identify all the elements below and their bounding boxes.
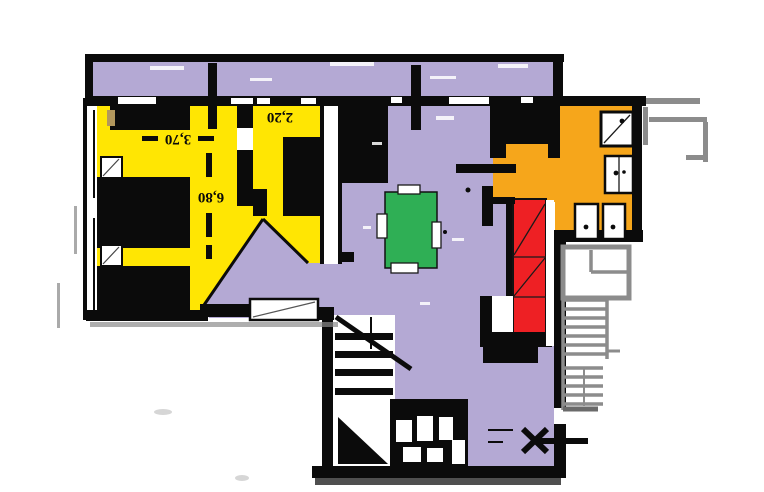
speck: [443, 230, 447, 234]
sketch-smudge: [57, 283, 60, 328]
cabinet-block: [483, 347, 538, 363]
top-wall: [85, 96, 646, 106]
dining-table: [385, 192, 437, 268]
stair-tread: [335, 369, 393, 376]
shelf-bottom: [480, 332, 552, 347]
small-room-furniture: [283, 137, 322, 216]
lower-stair-step: [427, 448, 443, 462]
small-room-wall-foot: [338, 252, 354, 262]
lower-stair-step: [403, 447, 421, 462]
window-gap: [521, 97, 533, 103]
sink-dot: [614, 171, 619, 176]
dim-dash: [206, 153, 212, 177]
left-outer-wall: [83, 98, 87, 320]
bedroom-wardrobe: [110, 105, 190, 130]
sketch-mark: [649, 117, 707, 122]
sketch-mark: [646, 98, 700, 104]
hallway-left-wall: [490, 106, 506, 158]
bed-second: [97, 266, 190, 313]
dim-tick: [198, 136, 214, 141]
bidet: [603, 204, 625, 239]
chair: [391, 263, 418, 273]
small-room-wall-edge: [338, 106, 342, 264]
small-tan-mark: [107, 110, 115, 126]
hallway-right-stub: [548, 106, 560, 158]
dim-label-220: 2,20: [267, 109, 293, 125]
chair: [377, 214, 387, 238]
lower-stair-step: [396, 420, 412, 442]
bottom-wall: [312, 466, 566, 478]
bottom-shadow: [315, 478, 561, 485]
sketch-mark: [686, 155, 706, 160]
sink-dot: [622, 170, 626, 174]
hallway-bottom-line: [493, 197, 515, 204]
dim-dash: [206, 245, 212, 259]
wall-shadow: [90, 322, 338, 327]
chair: [398, 185, 420, 194]
page-smudge: [235, 475, 249, 481]
door-gap-between-rooms: [237, 128, 253, 150]
bedroom-bottom-wall: [86, 310, 208, 321]
page-smudge: [154, 409, 172, 415]
hallway-bottom-stub: [482, 186, 493, 226]
door-handle-dot: [466, 188, 471, 193]
sketch-mark: [643, 107, 648, 145]
balcony-divider-right: [411, 65, 421, 130]
balcony-right-wall: [553, 54, 563, 100]
stairwell-left-wall: [322, 315, 333, 477]
dim-tick: [142, 136, 158, 141]
bidet-dot: [611, 225, 616, 230]
floor-plan-canvas: 3,70 6,80 2,20: [0, 0, 764, 492]
small-room-furniture-foot: [253, 189, 267, 216]
balcony-divider-left: [208, 63, 217, 129]
stair-tread: [335, 388, 393, 395]
lower-stair-step: [417, 416, 433, 441]
floor-plan-drawing: 3,70 6,80 2,20: [0, 0, 764, 492]
window-gap: [231, 98, 253, 104]
toilet-dot: [584, 225, 589, 230]
small-room-wall-edge: [320, 106, 324, 264]
small-room-wall-core: [324, 106, 338, 264]
lower-stair-step: [452, 440, 465, 464]
rooms-divider-wall: [237, 150, 253, 206]
lower-stair-step: [439, 417, 453, 440]
right-wall: [554, 424, 566, 468]
chair: [432, 222, 441, 248]
dim-label-370: 3,70: [165, 131, 191, 147]
hallway-door-leaf: [456, 164, 516, 173]
dim-label-680: 6,80: [198, 189, 224, 205]
ext-stair-upper-treads: [563, 300, 607, 354]
bed-double: [97, 177, 190, 248]
balcony-left-wall: [85, 54, 93, 100]
dim-dash: [206, 213, 212, 237]
rooms-divider-wall: [237, 100, 253, 128]
red-wardrobe: [513, 199, 546, 333]
window-gap: [449, 97, 489, 104]
toilet: [575, 204, 598, 239]
window-gap: [391, 97, 402, 103]
left-window-line: [93, 218, 95, 312]
wall-white-strip: [546, 200, 554, 346]
shower-head-dot: [620, 119, 625, 124]
shelf-inner: [492, 296, 513, 332]
window-gap: [118, 97, 156, 104]
balcony-floor: [88, 58, 555, 100]
sketch-smudge: [74, 206, 77, 254]
window-gap: [301, 98, 316, 104]
left-window-line: [93, 110, 95, 198]
balcony-top-wall: [86, 54, 564, 62]
window-gap: [257, 98, 270, 104]
